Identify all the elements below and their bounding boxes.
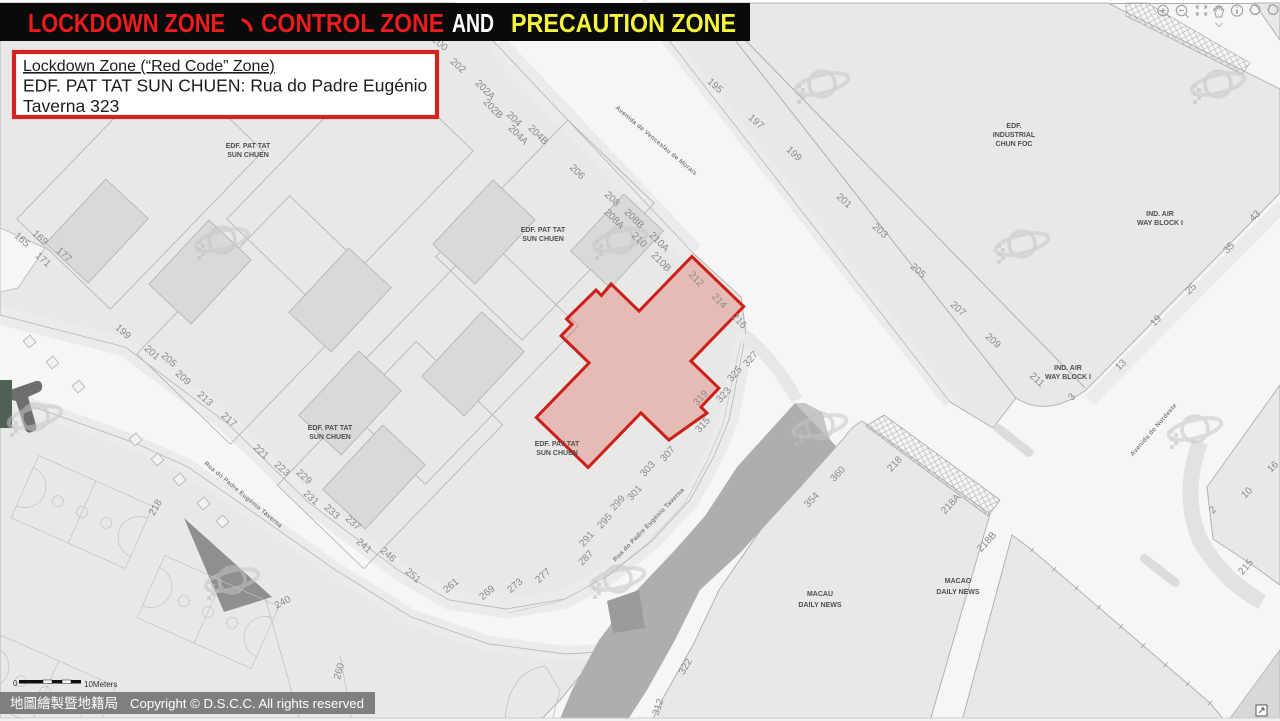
svg-text:SUN CHUEN: SUN CHUEN bbox=[536, 450, 578, 457]
svg-text:WAY BLOCK I: WAY BLOCK I bbox=[1045, 374, 1091, 381]
svg-text:LOCKDOWN ZONE: LOCKDOWN ZONE bbox=[28, 10, 225, 38]
svg-text:Taverna 323: Taverna 323 bbox=[23, 96, 119, 116]
svg-text:EDF.: EDF. bbox=[1006, 123, 1021, 130]
svg-text:DAILY NEWS: DAILY NEWS bbox=[936, 589, 980, 596]
svg-text:SUN CHUEN: SUN CHUEN bbox=[227, 152, 269, 159]
svg-text:EDF. PAT TAT: EDF. PAT TAT bbox=[535, 441, 580, 448]
svg-text:0: 0 bbox=[13, 679, 18, 688]
svg-text:EDF. PAT TAT: EDF. PAT TAT bbox=[226, 143, 271, 150]
svg-text:EDF. PAT TAT: EDF. PAT TAT bbox=[521, 227, 566, 234]
svg-text:INDUSTRIAL: INDUSTRIAL bbox=[993, 132, 1036, 139]
svg-text:CHUN FOC: CHUN FOC bbox=[996, 141, 1033, 148]
svg-text:EDF. PAT TAT: EDF. PAT TAT bbox=[308, 425, 353, 432]
svg-text:EDF. PAT TAT SUN CHUEN: Rua do: EDF. PAT TAT SUN CHUEN: Rua do Padre Eug… bbox=[23, 76, 427, 96]
svg-text:AND: AND bbox=[452, 10, 494, 38]
svg-text:SUN CHUEN: SUN CHUEN bbox=[522, 236, 564, 243]
svg-text:Lockdown Zone (“Red Code” Zone: Lockdown Zone (“Red Code” Zone) bbox=[23, 58, 275, 75]
svg-text:SUN CHUEN: SUN CHUEN bbox=[309, 434, 351, 441]
svg-text:10Meters: 10Meters bbox=[84, 680, 117, 689]
svg-text:Copyright © D.S.C.C. All right: Copyright © D.S.C.C. All rights reserved bbox=[130, 696, 364, 711]
svg-text:CONTROL ZONE: CONTROL ZONE bbox=[261, 10, 444, 38]
svg-text:MACAO: MACAO bbox=[945, 578, 972, 585]
svg-text:IND. AIR: IND. AIR bbox=[1054, 365, 1082, 372]
svg-text:PRECAUTION ZONE: PRECAUTION ZONE bbox=[511, 10, 736, 38]
svg-text:地圖繪製暨地籍局: 地圖繪製暨地籍局 bbox=[10, 695, 118, 711]
svg-text:IND. AIR: IND. AIR bbox=[1146, 211, 1174, 218]
svg-text:MACAU: MACAU bbox=[807, 591, 833, 598]
svg-text:DAILY NEWS: DAILY NEWS bbox=[798, 602, 842, 609]
svg-text:WAY BLOCK I: WAY BLOCK I bbox=[1137, 220, 1183, 227]
